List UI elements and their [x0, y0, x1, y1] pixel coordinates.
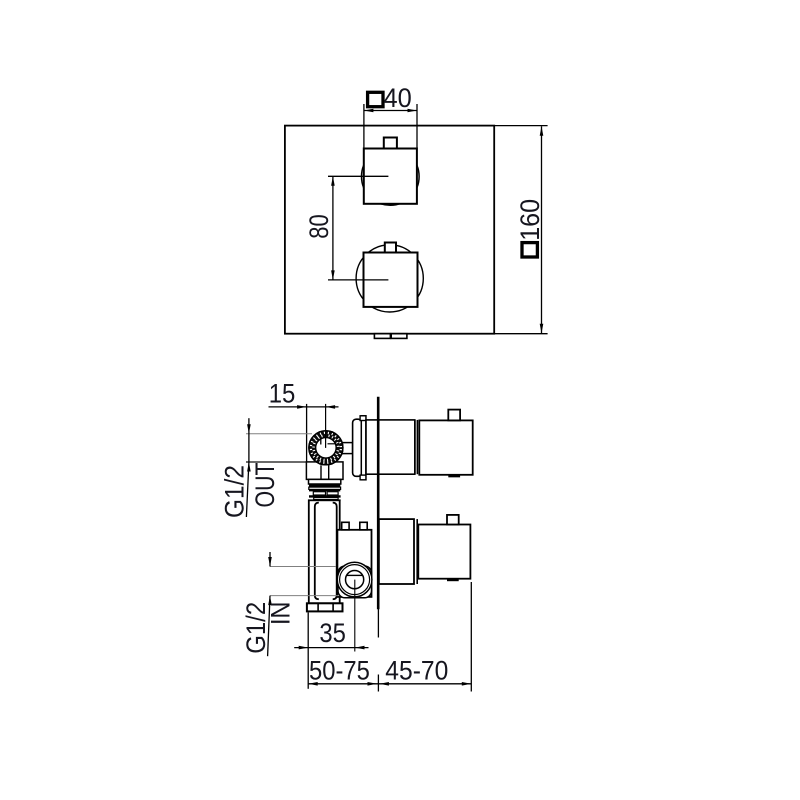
svg-text:IN: IN: [266, 602, 296, 625]
svg-text:OUT: OUT: [250, 463, 280, 508]
svg-text:160: 160: [515, 199, 545, 241]
svg-text:45-70: 45-70: [385, 655, 448, 685]
svg-text:15: 15: [269, 379, 296, 409]
svg-text:35: 35: [319, 618, 346, 648]
svg-text:40: 40: [384, 83, 412, 113]
svg-text:50-75: 50-75: [309, 655, 370, 685]
svg-text:80: 80: [304, 214, 334, 239]
svg-text:G1/2: G1/2: [219, 465, 249, 518]
